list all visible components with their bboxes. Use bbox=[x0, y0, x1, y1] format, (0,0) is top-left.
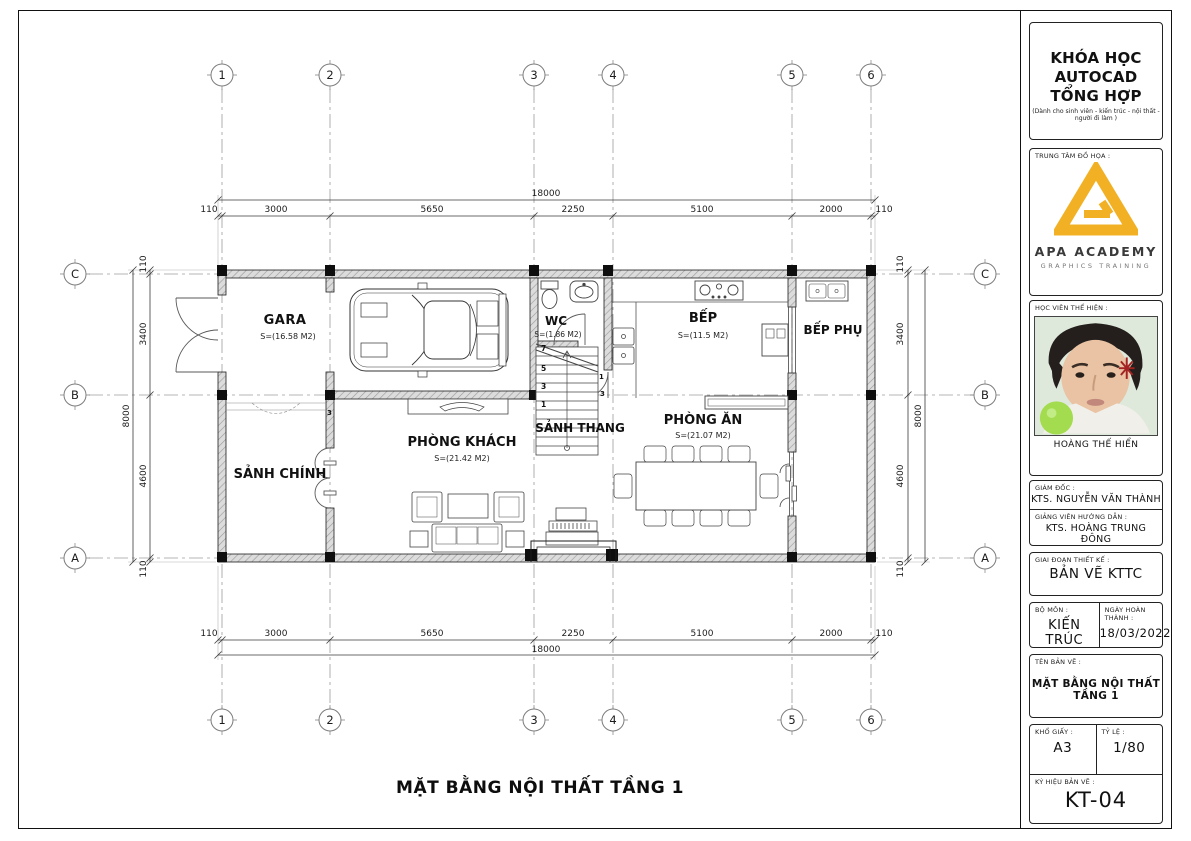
dept-value: KIẾN TRÚC bbox=[1030, 618, 1099, 648]
dim-seg: 5650 bbox=[421, 205, 444, 215]
course-title-line1: KHÓA HỌC bbox=[1030, 49, 1162, 68]
dept-date-box: BỘ MÔN : KIẾN TRÚC NGÀY HOÀN THÀNH : 18/… bbox=[1029, 602, 1163, 648]
student-photo bbox=[1034, 316, 1158, 436]
step-number: 3 bbox=[327, 409, 332, 417]
grid-bubble-col: 2 bbox=[315, 705, 345, 735]
instructor-name: KTS. HOÀNG TRUNG ĐÔNG bbox=[1030, 523, 1162, 545]
grid-bubble-row: A bbox=[970, 543, 1000, 573]
code-cell: KÝ HIỆU BẢN VẼ : KT-04 bbox=[1030, 775, 1162, 812]
dim-seg: 3000 bbox=[265, 205, 288, 215]
dim-seg: 4600 bbox=[139, 464, 149, 487]
dim-seg: 3000 bbox=[265, 629, 288, 639]
room-label-sanh-thang: SẢNH THANG bbox=[535, 419, 625, 435]
dining-set bbox=[614, 446, 778, 526]
dim-seg: 3400 bbox=[139, 322, 149, 345]
dim-seg: 4600 bbox=[896, 464, 906, 487]
room-label-sanh-chinh: SẢNH CHÍNH bbox=[234, 465, 327, 482]
dim-seg: 2000 bbox=[820, 629, 843, 639]
grid-bubble-col: 1 bbox=[207, 60, 237, 90]
dimension-extension-lines bbox=[128, 195, 930, 660]
grid-bubble-col: 4 bbox=[598, 60, 628, 90]
stair-number: 3 bbox=[541, 382, 546, 391]
director-name: KTS. NGUYỄN VĂN THÀNH bbox=[1030, 494, 1162, 505]
grid-label: B bbox=[71, 388, 79, 402]
date-cell: NGÀY HOÀN THÀNH : 18/03/2022 bbox=[1099, 603, 1171, 647]
dim-total-right: 8000 bbox=[914, 404, 924, 427]
dim-seg: 5100 bbox=[691, 205, 714, 215]
console-table bbox=[546, 508, 598, 545]
stove bbox=[695, 281, 743, 300]
grid-label: A bbox=[981, 551, 989, 565]
dim-seg: 2000 bbox=[820, 205, 843, 215]
grid-bubble-col: 3 bbox=[519, 60, 549, 90]
car bbox=[350, 283, 508, 377]
room-label-bep: BẾP bbox=[689, 309, 717, 326]
drawing-name-box: TÊN BẢN VẼ : MẶT BẰNG NỘI THẤT TẦNG 1 bbox=[1029, 654, 1163, 718]
director-cell: GIÁM ĐỐC : KTS. NGUYỄN VĂN THÀNH bbox=[1030, 481, 1162, 505]
dept-cell: BỘ MÔN : KIẾN TRÚC bbox=[1030, 603, 1099, 647]
room-label-wc: WC bbox=[545, 314, 567, 328]
grid-label: 4 bbox=[609, 713, 616, 727]
date-value: 18/03/2022 bbox=[1100, 626, 1171, 640]
step-number: 1 bbox=[327, 394, 332, 402]
room-bep: BẾP S=(11.5 M2) bbox=[612, 281, 788, 409]
student-box: HỌC VIÊN THỂ HIỆN : bbox=[1029, 300, 1163, 476]
grid-bubble-row: B bbox=[60, 380, 90, 410]
dimension-labels-top: 18000 110 3000 5650 2250 5100 2000 110 bbox=[200, 189, 892, 215]
titleblock-divider bbox=[1020, 10, 1021, 829]
academy-tagline: GRAPHICS TRAINING bbox=[1030, 262, 1162, 270]
grid-label: 2 bbox=[326, 68, 333, 82]
grid-bubble-col: 2 bbox=[315, 60, 345, 90]
room-area-phong-khach: S=(21.42 M2) bbox=[434, 454, 489, 463]
dim-seg: 110 bbox=[139, 560, 149, 577]
room-area-phong-an: S=(21.07 M2) bbox=[675, 431, 730, 440]
grid-label: 1 bbox=[218, 68, 225, 82]
dimensions-left bbox=[130, 267, 154, 566]
staircase: 7 5 3 1 1 3 bbox=[536, 344, 605, 455]
plan-title: MẶT BẰNG NỘI THẤT TẦNG 1 bbox=[396, 774, 684, 798]
bar-counter bbox=[705, 396, 788, 409]
dim-seg: 110 bbox=[875, 629, 892, 639]
step-number: 3 bbox=[600, 390, 605, 398]
grid-bubble-col: 5 bbox=[777, 60, 807, 90]
grid-bubble-col: 3 bbox=[519, 705, 549, 735]
dim-seg: 110 bbox=[896, 560, 906, 577]
grid-label: 3 bbox=[530, 713, 537, 727]
grid-bubble-col: 4 bbox=[598, 705, 628, 735]
sofa-set bbox=[410, 492, 524, 552]
room-area-bep: S=(11.5 M2) bbox=[678, 331, 728, 340]
student-portrait-image bbox=[1035, 317, 1157, 435]
dimension-labels-right: 110 3400 4600 110 8000 bbox=[896, 255, 924, 577]
director-label: GIÁM ĐỐC : bbox=[1030, 481, 1162, 492]
apa-logo-icon bbox=[1054, 162, 1138, 236]
room-label-phong-an: PHÒNG ĂN bbox=[664, 412, 742, 428]
grid-bubble-row: B bbox=[970, 380, 1000, 410]
step-number: 1 bbox=[599, 373, 604, 381]
paper-scale-code-box: KHỔ GIẤY : A3 TỶ LỆ : 1/80 KÝ HIỆU BẢN V… bbox=[1029, 724, 1163, 824]
grid-label: B bbox=[981, 388, 989, 402]
code-value: KT-04 bbox=[1030, 788, 1162, 812]
grid-label: 6 bbox=[867, 713, 874, 727]
grid-label: 5 bbox=[788, 68, 795, 82]
course-subtitle: (Dành cho sinh viên - kiến trúc - nội th… bbox=[1030, 108, 1162, 122]
instructor-label: GIẢNG VIÊN HƯỚNG DẪN : bbox=[1030, 510, 1162, 521]
phase-label: GIAI ĐOẠN THIẾT KẾ : bbox=[1030, 553, 1162, 564]
wc-sink bbox=[570, 281, 598, 302]
paper-label: KHỔ GIẤY : bbox=[1030, 725, 1096, 736]
academy-name: APA ACADEMY bbox=[1030, 244, 1162, 259]
dim-seg: 110 bbox=[875, 205, 892, 215]
grid-label: 6 bbox=[867, 68, 874, 82]
room-area-gara: S=(16.58 M2) bbox=[260, 332, 315, 341]
kitchen-sinks bbox=[613, 328, 634, 364]
dim-seg: 2250 bbox=[562, 629, 585, 639]
floor-plan-canvas: 18000 110 3000 5650 2250 5100 2000 110 1… bbox=[0, 0, 1022, 841]
room-sanh-chinh: 1 3 SẢNH CHÍNH bbox=[226, 394, 332, 482]
instructor-cell: GIẢNG VIÊN HƯỚNG DẪN : KTS. HOÀNG TRUNG … bbox=[1030, 510, 1162, 545]
dim-seg: 3400 bbox=[896, 322, 906, 345]
dim-seg: 110 bbox=[139, 255, 149, 272]
dept-label: BỘ MÔN : bbox=[1030, 603, 1099, 614]
drawing-name-label: TÊN BẢN VẼ : bbox=[1030, 655, 1162, 666]
dim-total-left: 8000 bbox=[122, 404, 132, 427]
grid-label: 2 bbox=[326, 713, 333, 727]
course-box: KHÓA HỌC AUTOCAD TỔNG HỢP (Dành cho sinh… bbox=[1029, 22, 1163, 140]
toilet bbox=[541, 281, 558, 309]
sliding-door-phong-an bbox=[780, 452, 797, 516]
drawing-name-value: MẶT BẰNG NỘI THẤT TẦNG 1 bbox=[1030, 678, 1162, 702]
room-bep-phu: BẾP PHỤ bbox=[804, 281, 863, 337]
phase-value: BẢN VẼ KTTC bbox=[1030, 566, 1162, 582]
window-bep-phu bbox=[789, 307, 796, 373]
drawing-sheet: { "sheet": { "title_bottom": "MẶT BẰNG N… bbox=[0, 0, 1191, 841]
grid-bubble-col: 6 bbox=[856, 705, 886, 735]
titleblock: KHÓA HỌC AUTOCAD TỔNG HỢP (Dành cho sinh… bbox=[1022, 10, 1172, 829]
training-center-box: TRUNG TÂM ĐỒ HỌA : APA ACADEMY GRAPHICS … bbox=[1029, 148, 1163, 296]
dim-total-top: 18000 bbox=[532, 189, 561, 199]
student-label: HỌC VIÊN THỂ HIỆN : bbox=[1030, 301, 1162, 312]
grid-bubble-col: 5 bbox=[777, 705, 807, 735]
dimensions-top bbox=[215, 197, 879, 220]
room-label-bep-phu: BẾP PHỤ bbox=[804, 321, 863, 337]
stair-number: 1 bbox=[541, 400, 546, 409]
grid-bubble-col: 6 bbox=[856, 60, 886, 90]
tv-cabinet bbox=[408, 399, 508, 414]
dimension-labels-bottom: 110 3000 5650 2250 5100 2000 110 18000 bbox=[200, 629, 892, 655]
scale-value: 1/80 bbox=[1097, 740, 1163, 756]
grid-label: 5 bbox=[788, 713, 795, 727]
dim-seg: 2250 bbox=[562, 205, 585, 215]
grid-bubble-col: 1 bbox=[207, 705, 237, 735]
room-label-gara: GARA bbox=[264, 313, 307, 328]
grid-label: 1 bbox=[218, 713, 225, 727]
fridge bbox=[762, 324, 788, 356]
grid-bubble-row: A bbox=[60, 543, 90, 573]
grid-label: C bbox=[981, 267, 989, 281]
scale-label: TỶ LỆ : bbox=[1097, 725, 1163, 736]
paper-scale-row: KHỔ GIẤY : A3 TỶ LỆ : 1/80 bbox=[1030, 725, 1162, 774]
dim-seg: 5650 bbox=[421, 629, 444, 639]
course-title-line2: AUTOCAD TỔNG HỢP bbox=[1030, 68, 1162, 106]
student-name: HOÀNG THẾ HIỂN bbox=[1030, 440, 1162, 450]
stair-number: 5 bbox=[541, 364, 546, 373]
training-center-label: TRUNG TÂM ĐỒ HỌA : bbox=[1030, 149, 1162, 160]
staff-box: GIÁM ĐỐC : KTS. NGUYỄN VĂN THÀNH GIẢNG V… bbox=[1029, 480, 1163, 546]
grid-label: 4 bbox=[609, 68, 616, 82]
grid-bubble-row: C bbox=[970, 259, 1000, 289]
room-area-wc: S=(1.86 M2) bbox=[534, 330, 581, 339]
double-sink bbox=[806, 281, 848, 301]
grid-label: A bbox=[71, 551, 79, 565]
dim-seg: 5100 bbox=[691, 629, 714, 639]
phase-box: GIAI ĐOẠN THIẾT KẾ : BẢN VẼ KTTC bbox=[1029, 552, 1163, 596]
room-phong-an: PHÒNG ĂN S=(21.07 M2) bbox=[614, 412, 778, 526]
grid-bubble-row: C bbox=[60, 259, 90, 289]
paper-value: A3 bbox=[1030, 740, 1096, 756]
room-phong-khach: PHÒNG KHÁCH S=(21.42 M2) bbox=[408, 399, 524, 552]
dimension-labels-left: 110 3400 4600 110 8000 bbox=[122, 255, 149, 577]
code-label: KÝ HIỆU BẢN VẼ : bbox=[1030, 775, 1162, 786]
room-wc: WC S=(1.86 M2) bbox=[534, 281, 598, 339]
dim-seg: 110 bbox=[200, 629, 217, 639]
scale-cell: TỶ LỆ : 1/80 bbox=[1096, 725, 1163, 774]
dim-total-bottom: 18000 bbox=[532, 645, 561, 655]
dim-seg: 110 bbox=[200, 205, 217, 215]
date-label: NGÀY HOÀN THÀNH : bbox=[1100, 603, 1171, 622]
dim-seg: 110 bbox=[896, 255, 906, 272]
room-label-phong-khach: PHÒNG KHÁCH bbox=[408, 434, 517, 450]
stair-number: 7 bbox=[541, 344, 546, 353]
grid-label: C bbox=[71, 267, 79, 281]
hall-steps bbox=[226, 403, 326, 414]
room-gara: GARA S=(16.58 M2) bbox=[260, 283, 508, 377]
grid-label: 3 bbox=[530, 68, 537, 82]
paper-cell: KHỔ GIẤY : A3 bbox=[1030, 725, 1096, 774]
